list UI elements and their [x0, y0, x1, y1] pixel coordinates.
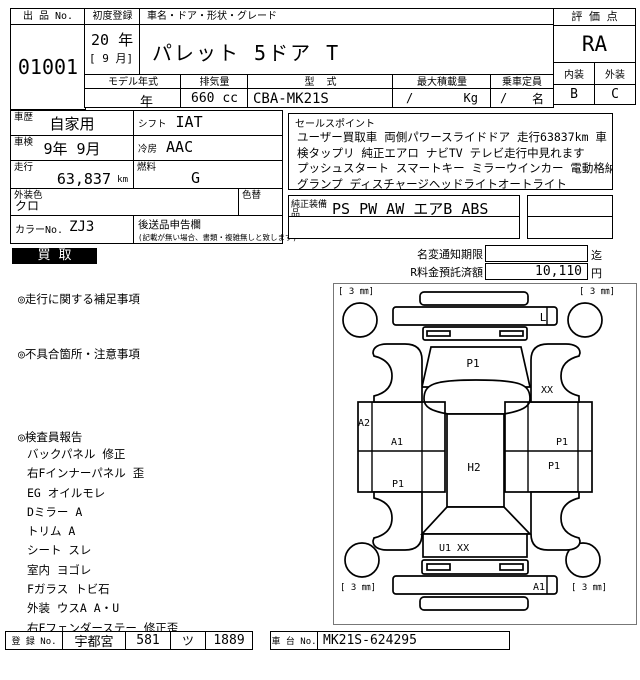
rear-window-transition — [422, 507, 530, 534]
rear-left-fender — [373, 492, 422, 550]
model-year-value: 年 — [84, 88, 182, 108]
max-load-slash: / — [406, 91, 413, 105]
side-box-row2 — [527, 216, 613, 239]
color-change-label: 色替 — [242, 190, 261, 201]
first-registration-month: [ 9 月] — [85, 50, 140, 66]
interior-score: B — [553, 84, 595, 105]
right-front-panel-mark: P1 — [556, 437, 568, 448]
mileage-unit: km — [117, 175, 128, 185]
score-header: 評 価 点 — [553, 8, 636, 26]
right-mirror-mark: XX — [541, 385, 553, 396]
rear-left-tire — [345, 543, 379, 577]
recycle-fee-label: R料金預託済額 — [363, 265, 483, 280]
roof-mark: H2 — [467, 461, 480, 474]
color-change-cell: 色替 — [238, 188, 283, 216]
front-right-fender — [531, 344, 580, 402]
tire-depth-rear-left: [ 3 ㎜] — [340, 583, 376, 593]
mileage-cell: 走行 63,837 km — [10, 160, 134, 189]
inspection-value: 9年 9月 — [43, 138, 100, 159]
sales-line: 検タップリ 純正エアロ ナビTV テレビ走行中見れます — [289, 146, 612, 162]
front-bumper-mark: L — [540, 311, 547, 324]
capacity-slash: / — [500, 91, 507, 105]
defect-notes-heading: ◎不具合箇所・注意事項 — [18, 347, 140, 361]
max-load-unit: Kg — [464, 91, 478, 105]
ac-value: AAC — [166, 138, 193, 156]
sales-line: プッシュスタート スマートキー ミラーウインカー 電動格納ドアミラー フォ — [289, 161, 612, 177]
inspector-item: Fガラス トビ石 — [27, 580, 317, 599]
side-box-row1 — [527, 195, 613, 218]
sales-point-title: セールスポイント — [289, 114, 612, 130]
sales-line: グランプ ディスチャージヘッドライトオートライト — [289, 177, 612, 191]
inspector-item: 室内 ヨゴレ — [27, 561, 317, 580]
sales-line: ユーザー買取車 両側パワースライドドア 走行63837km 車 — [289, 130, 612, 146]
tire-depth-rear-right: [ 3 ㎜] — [571, 583, 607, 593]
first-registration-year: 20 年 — [85, 25, 140, 50]
shift-label: シフト — [138, 116, 167, 130]
name-change-box — [485, 245, 588, 262]
front-upper-strip — [420, 292, 528, 305]
equipment-row-empty — [288, 216, 520, 239]
exterior-score: C — [594, 84, 636, 105]
displacement-value: 660 cc — [180, 88, 249, 108]
capacity-value: / 名 — [490, 88, 554, 108]
inspection-cell: 車検 9年 9月 — [10, 135, 134, 161]
ac-label: 冷房 — [138, 141, 157, 155]
name-change-suffix: 迄 — [591, 248, 602, 263]
shift-cell: シフト IAT — [133, 110, 283, 136]
rear-bumper-mark: A1 — [533, 582, 545, 593]
front-right-tire — [568, 303, 602, 337]
fuel-label: 燃料 — [137, 162, 156, 173]
shift-value: IAT — [176, 113, 203, 131]
first-registration-value: 20 年 [ 9 月] — [84, 24, 141, 76]
color-no-label: カラーNo. — [15, 221, 63, 236]
driving-notes-heading: ◎走行に関する補足事項 — [18, 292, 140, 306]
inspector-report-heading: ◎検査員報告 — [18, 430, 82, 444]
model-code-value: CBA-MK21S — [247, 88, 394, 108]
capacity-unit: 名 — [532, 90, 544, 107]
inspector-item: 右Fインナーパネル 歪 — [27, 464, 317, 483]
rear-grille — [422, 560, 528, 574]
color-no-cell: カラーNo. ZJ3 — [10, 215, 134, 244]
chassis-no-value: MK21S-624295 — [317, 631, 510, 650]
later-items-label: 後送品申告欄 — [134, 216, 282, 232]
lot-no-value: 01001 — [10, 24, 86, 110]
inspector-item: EG オイルモレ — [27, 484, 317, 503]
right-side-panels — [505, 402, 592, 492]
tire-depth-front-right: [ 3 ㎜] — [579, 287, 615, 297]
name-change-label: 名変通知期限 — [363, 247, 483, 262]
rear-gate-mark: U1 XX — [439, 543, 469, 554]
later-items-note: (記載が無い場合、書類・複雑無しと致します) — [134, 232, 282, 243]
sales-point-box: セールスポイント ユーザー買取車 両側パワースライドドア 走行63837km 車… — [288, 113, 613, 190]
inspector-item: 外装 ウスA A・U — [27, 599, 317, 618]
inspector-item: Dミラー A — [27, 503, 317, 522]
color-no-value: ZJ3 — [69, 218, 94, 236]
inspection-label: 車検 — [14, 137, 33, 148]
inspector-item: バックパネル 修正 — [27, 445, 317, 464]
front-grille — [423, 327, 527, 340]
fuel-cell: 燃料 G — [133, 160, 283, 189]
fuel-value: G — [134, 161, 282, 187]
registration-class: 581 — [125, 631, 171, 650]
left-rear-panel-mark: P1 — [392, 479, 404, 490]
score-value: RA — [553, 25, 636, 63]
front-bumper — [393, 307, 557, 325]
rear-lower-strip — [420, 597, 528, 610]
later-items-cell: 後送品申告欄 (記載が無い場合、書類・複雑無しと致します) — [133, 215, 283, 244]
registration-area: 宇都宮 — [62, 631, 126, 650]
hood-mark: P1 — [466, 357, 479, 370]
interior-label: 内装 — [553, 62, 595, 85]
registration-no-label: 登 録 No. — [5, 631, 63, 650]
left-sill-mark: A2 — [358, 418, 370, 429]
history-cell: 車歴 自家用 — [10, 110, 134, 136]
front-left-tire — [343, 303, 377, 337]
inspector-item: トリム A — [27, 522, 317, 541]
tire-depth-front-left: [ 3 ㎜] — [338, 287, 374, 297]
recycle-fee-suffix: 円 — [591, 266, 602, 281]
windshield — [424, 380, 530, 414]
left-front-door-mark: A1 — [391, 437, 403, 448]
equipment-row: 純正装備品 PS PW AW エアB ABS — [288, 195, 520, 218]
inspector-report-list: バックパネル 修正 右Fインナーパネル 歪 EG オイルモレ Dミラー A トリ… — [27, 445, 317, 638]
max-load-value: / Kg — [392, 88, 492, 108]
car-name-value: パレット 5ドア T — [139, 24, 554, 76]
rear-right-fender — [531, 492, 580, 550]
ac-cell: 冷房 AAC — [133, 135, 283, 161]
chassis-no-label: 車 台 No. — [270, 631, 318, 650]
history-label: 車歴 — [14, 112, 33, 123]
kaitori-badge: 買取 — [12, 248, 97, 264]
front-left-fender — [373, 344, 422, 402]
exterior-color-value: クロ — [15, 197, 39, 214]
exterior-color-cell: 外装色 クロ — [10, 188, 240, 216]
right-rear-panel-mark: P1 — [548, 461, 560, 472]
damage-diagram: [ 3 ㎜] [ 3 ㎜] [ 3 ㎜] [ 3 ㎜] L P1 H2 A2 A… — [333, 283, 637, 625]
mileage-label: 走行 — [14, 162, 33, 173]
recycle-fee-box: 10,110 — [485, 263, 588, 280]
registration-kana: ツ — [170, 631, 206, 650]
exterior-label: 外装 — [594, 62, 636, 85]
inspector-item: シート スレ — [27, 541, 317, 560]
history-value: 自家用 — [49, 113, 94, 134]
auction-sheet: 出 品 No. 01001 初度登録 20 年 [ 9 月] 車名・ドア・形状・… — [0, 0, 640, 680]
registration-number: 1889 — [205, 631, 253, 650]
